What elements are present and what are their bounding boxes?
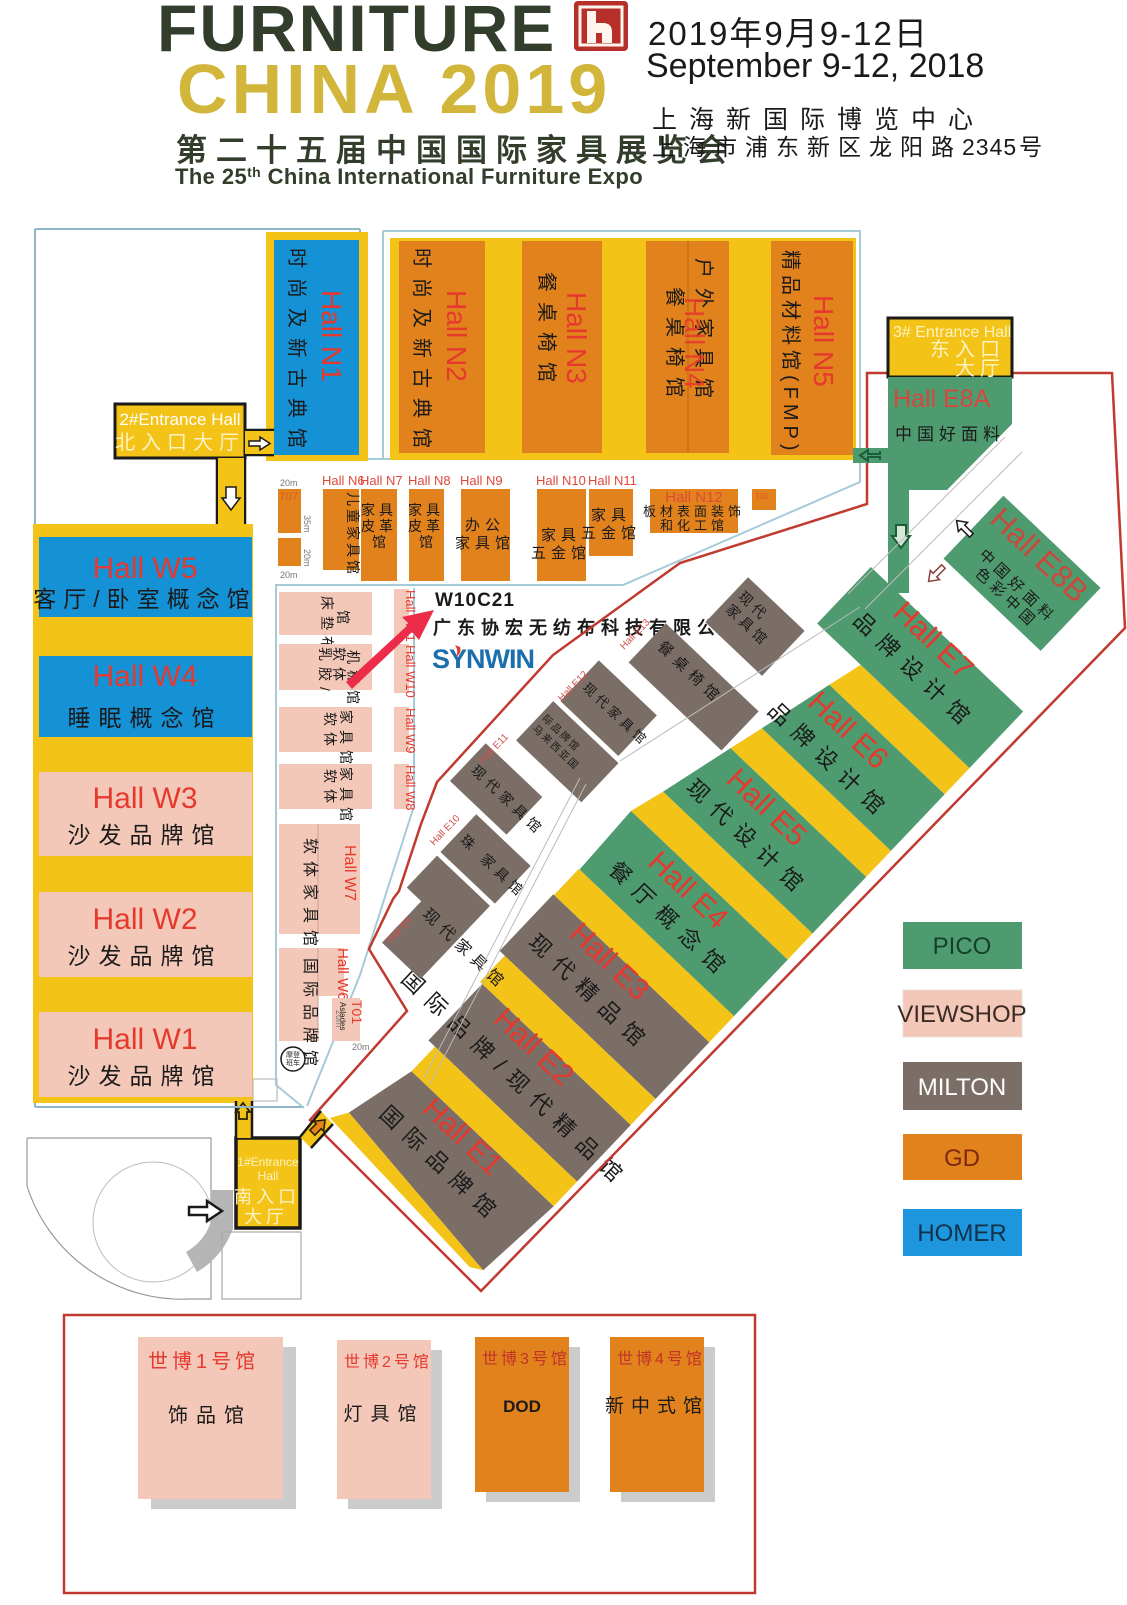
svg-text:馆: 馆 [335, 610, 351, 630]
svg-text:Hall W10: Hall W10 [403, 645, 418, 698]
svg-text:Hall W9: Hall W9 [403, 708, 418, 754]
svg-text:灯具馆: 灯具馆 [343, 1403, 424, 1425]
svg-text:Hall N6: Hall N6 [322, 473, 365, 488]
svg-text:Hall N4: Hall N4 [679, 297, 710, 389]
svg-text:DOD: DOD [503, 1397, 541, 1416]
svg-text:Hall N7: Hall N7 [360, 473, 403, 488]
svg-text:T01: T01 [349, 1000, 365, 1024]
svg-text:时尚及新古典馆: 时尚及新古典馆 [410, 248, 433, 458]
svg-text:家具: 家具 [408, 502, 444, 518]
svg-text:大厅: 大厅 [955, 357, 1005, 380]
svg-text:The 25th China International F: The 25th China International Furniture E… [175, 164, 643, 189]
svg-text:馆: 馆 [419, 534, 433, 550]
svg-text:Hall W7: Hall W7 [341, 845, 358, 901]
svg-text:2#Entrance Hall: 2#Entrance Hall [120, 410, 241, 429]
svg-text:皮革: 皮革 [408, 518, 444, 534]
svg-text:家具馆: 家具馆 [338, 767, 354, 827]
svg-text:家具馆: 家具馆 [455, 535, 515, 552]
svg-text:饰品馆: 饰品馆 [168, 1404, 252, 1427]
svg-text:摩登: 摩登 [286, 1050, 300, 1059]
svg-text:馆: 馆 [372, 534, 386, 550]
svg-text:Hall N10: Hall N10 [536, 473, 586, 488]
svg-text:Hall: Hall [258, 1169, 279, 1183]
svg-text:沙发品牌馆: 沙发品牌馆 [68, 822, 223, 848]
svg-text:办公: 办公 [465, 517, 505, 534]
svg-text:Hall W5: Hall W5 [92, 552, 197, 585]
svg-text:W10C21: W10C21 [435, 590, 515, 611]
svg-text:MILTON: MILTON [918, 1074, 1006, 1101]
svg-text:世博4号馆: 世博4号馆 [617, 1350, 705, 1368]
svg-text:乳胶/: 乳胶/ [317, 647, 333, 697]
svg-text:HOMER: HOMER [917, 1220, 1006, 1247]
svg-text:20m: 20m [280, 478, 298, 488]
svg-text:Hall W8: Hall W8 [403, 765, 418, 811]
svg-text:时尚及新古典馆: 时尚及新古典馆 [285, 248, 308, 458]
svg-text:家具: 家具 [541, 527, 581, 544]
svg-text:板材表面装饰: 板材表面装饰 [643, 504, 745, 519]
svg-text:上海市浦东新区龙阳路2345号: 上海市浦东新区龙阳路2345号 [652, 134, 1042, 160]
svg-text:和化工馆: 和化工馆 [660, 518, 728, 533]
svg-text:家具馆: 家具馆 [338, 710, 354, 770]
svg-text:软体家具馆: 软体家具馆 [301, 838, 319, 953]
svg-text:儿童家具馆: 儿童家具馆 [345, 492, 361, 577]
svg-text:Hall N3: Hall N3 [561, 292, 592, 384]
svg-text:世博2号馆: 世博2号馆 [344, 1353, 432, 1371]
svg-text:沙发品牌馆: 沙发品牌馆 [68, 943, 223, 969]
svg-text:中国好面料: 中国好面料 [895, 425, 1005, 444]
svg-text:五金馆: 五金馆 [581, 525, 641, 542]
svg-text:Hall N1: Hall N1 [316, 290, 347, 382]
svg-text:Hall W3: Hall W3 [92, 782, 197, 815]
svg-text:班车: 班车 [286, 1058, 300, 1067]
svg-text:GD: GD [944, 1145, 980, 1172]
svg-text:沙发品牌馆: 沙发品牌馆 [68, 1063, 223, 1089]
svg-text:家具: 家具 [361, 502, 397, 518]
svg-text:Hall E8A: Hall E8A [893, 385, 991, 413]
svg-text:Hall N11: Hall N11 [588, 473, 637, 488]
svg-text:Hall W4: Hall W4 [92, 660, 197, 693]
svg-text:20m: 20m [280, 570, 298, 580]
svg-text:20m: 20m [334, 1010, 344, 1028]
svg-text:1#Entrance: 1#Entrance [237, 1155, 299, 1169]
svg-text:上海新国际博览中心: 上海新国际博览中心 [652, 106, 985, 134]
svg-text:世博3号馆: 世博3号馆 [482, 1350, 570, 1368]
svg-text:Hall W1: Hall W1 [92, 1023, 197, 1056]
svg-text:Hall N5: Hall N5 [808, 295, 839, 387]
svg-text:20m: 20m [302, 549, 312, 567]
svg-text:软体: 软体 [322, 712, 338, 752]
svg-text:睡眠概念馆: 睡眠概念馆 [68, 705, 223, 731]
svg-text:35m: 35m [302, 515, 312, 533]
svg-text:新中式馆: 新中式馆 [605, 1395, 709, 1417]
svg-text:20m: 20m [352, 1042, 370, 1052]
svg-text:南入口: 南入口 [234, 1187, 300, 1207]
svg-text:餐桌椅馆: 餐桌椅馆 [535, 272, 558, 392]
svg-text:Hall W2: Hall W2 [92, 903, 197, 936]
svg-text:CHINA 2019: CHINA 2019 [177, 50, 611, 128]
svg-text:SYNWIN: SYNWIN [432, 644, 534, 674]
svg-text:大厅: 大厅 [244, 1207, 288, 1227]
svg-text:Hall N8: Hall N8 [408, 473, 451, 488]
svg-text:软体: 软体 [322, 769, 338, 809]
svg-text:皮革: 皮革 [361, 518, 397, 534]
svg-text:T08: T08 [755, 492, 769, 501]
svg-text:精品材料馆(FMP): 精品材料馆(FMP) [779, 250, 802, 456]
svg-text:Hall W6: Hall W6 [334, 948, 351, 1001]
svg-text:PICO: PICO [933, 933, 992, 960]
svg-text:Hall N2: Hall N2 [441, 290, 472, 382]
svg-text:软体: 软体 [331, 647, 347, 687]
svg-text:世博1号馆: 世博1号馆 [148, 1350, 259, 1373]
svg-text:北入口大厅: 北入口大厅 [115, 431, 245, 454]
svg-text:T07: T07 [279, 491, 298, 503]
svg-text:客厅/卧室概念馆: 客厅/卧室概念馆 [33, 586, 256, 612]
svg-text:September 9-12, 2018: September 9-12, 2018 [646, 47, 984, 85]
svg-text:Hall N9: Hall N9 [460, 473, 503, 488]
svg-text:五金馆: 五金馆 [531, 545, 591, 562]
svg-text:VIEWSHOP: VIEWSHOP [897, 1001, 1026, 1028]
svg-text:家具: 家具 [591, 507, 631, 524]
